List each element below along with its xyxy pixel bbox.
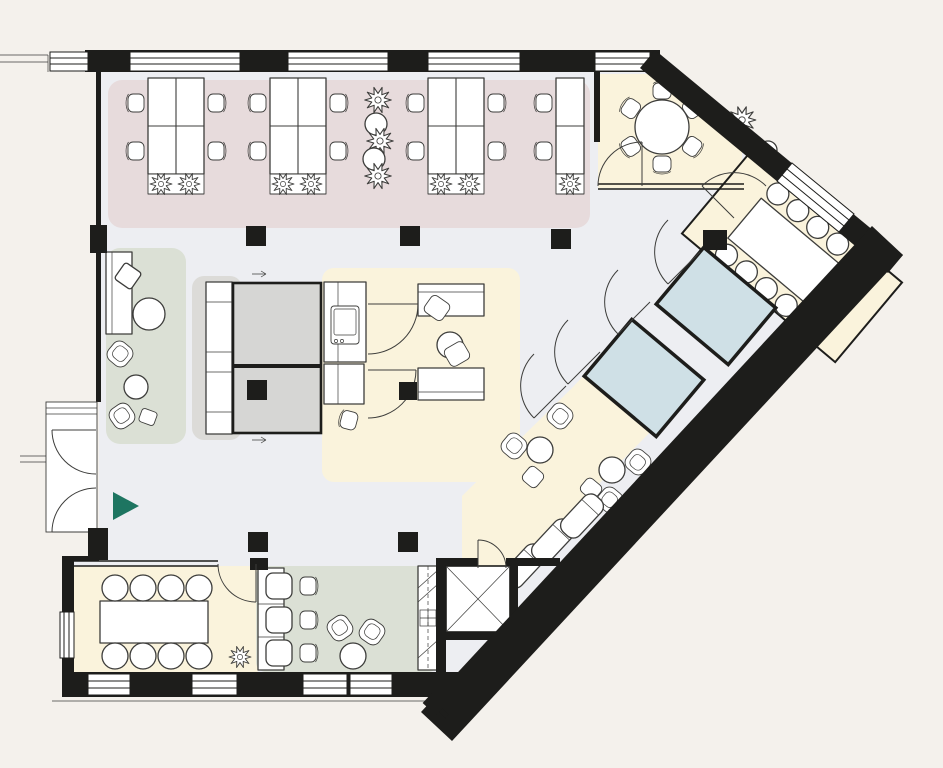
task-chair-icon [534, 142, 552, 160]
task-chair-icon [248, 94, 266, 112]
core-rooms [233, 271, 321, 443]
task-chair-icon [330, 142, 348, 160]
booth-table [266, 640, 292, 666]
coffee-table [124, 375, 148, 399]
meeting-chair [102, 575, 128, 601]
meeting-chair [158, 643, 184, 669]
column [246, 226, 266, 246]
column [551, 229, 571, 249]
wall-pillar [703, 230, 727, 250]
window [60, 612, 74, 658]
round-table [635, 100, 689, 154]
kitchenette-strip [418, 566, 438, 670]
cafe-chair-icon [300, 577, 318, 595]
task-chair-icon [406, 94, 424, 112]
task-chair-icon [126, 94, 144, 112]
meeting-chair [102, 643, 128, 669]
meeting-chair [158, 575, 184, 601]
booth-table [266, 607, 292, 633]
side-table [599, 457, 625, 483]
task-chair-icon [126, 142, 144, 160]
task-chair-icon [406, 142, 424, 160]
task-chair-icon [488, 94, 506, 112]
sink [331, 306, 359, 344]
round-table [340, 643, 366, 669]
column [248, 532, 268, 552]
side-table [527, 437, 553, 463]
cafe-chair-icon [300, 611, 318, 629]
meeting-chair [186, 575, 212, 601]
core-column [247, 380, 267, 400]
task-chair-icon [208, 142, 226, 160]
meeting-chair [186, 643, 212, 669]
column [398, 532, 418, 552]
task-chair-icon [534, 94, 552, 112]
column [399, 382, 417, 400]
column [400, 226, 420, 246]
chair-icon [653, 156, 671, 174]
task-chair-icon [488, 142, 506, 160]
north-wall [50, 50, 660, 72]
booth-table [266, 573, 292, 599]
meeting-chair [130, 575, 156, 601]
task-chair-icon [248, 142, 266, 160]
kitchen-counter [324, 364, 364, 404]
cafe-chair-icon [300, 644, 318, 662]
task-chair-icon [330, 94, 348, 112]
task-chair-icon [208, 94, 226, 112]
floor-plan-svg [0, 0, 943, 768]
desk [418, 368, 484, 400]
coffee-table [133, 298, 165, 330]
south-wall [62, 672, 460, 697]
floor-plan-page [0, 0, 943, 768]
meeting-table [100, 601, 208, 643]
meeting-chair [130, 643, 156, 669]
storage-cabinet [206, 282, 232, 434]
